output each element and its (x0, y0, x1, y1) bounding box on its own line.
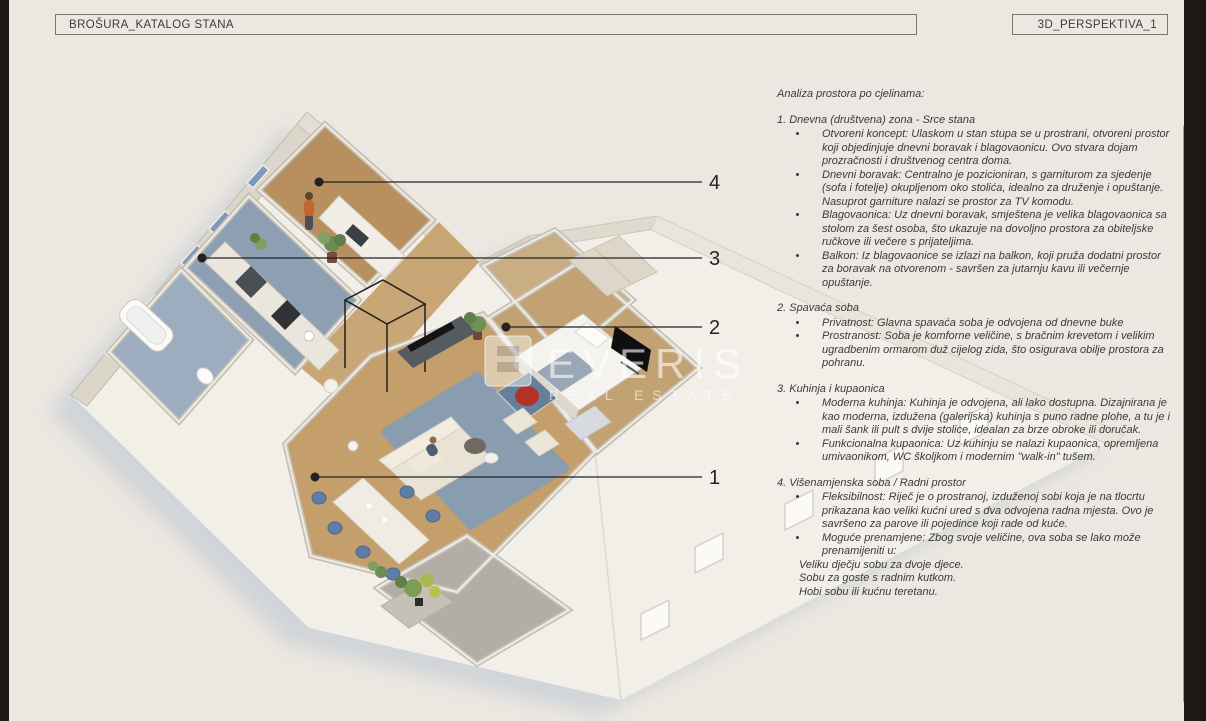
bullet-item: Blagovaonica: Uz dnevni boravak, smješte… (809, 209, 1171, 250)
analysis-title: Analiza prostora po cjelinama: (777, 88, 1171, 102)
page-edge-right (1184, 0, 1206, 721)
standing-person (304, 192, 314, 230)
callout-1-number: 1 (709, 467, 720, 489)
page-edge-left (0, 0, 9, 721)
bullet-item: Privatnost: Glavna spavaća soba je odvoj… (809, 317, 1171, 331)
bullet-item: Dnevni boravak: Centralno je pozicionira… (809, 169, 1171, 210)
analysis-section: 2. Spavaća soba Privatnost: Glavna spava… (777, 302, 1171, 371)
watermark-brand: EVERIS (547, 340, 749, 387)
section-bullet-list: Otvoreni koncept: Ulaskom u stan stupa s… (777, 128, 1171, 290)
brochure-page: BROŠURA_KATALOG STANA 3D_PERSPEKTIVA_1 (9, 0, 1184, 721)
callout-3-number: 3 (709, 248, 720, 270)
section-bullet-list: Fleksibilnost: Riječ je o prostranoj, iz… (777, 491, 1171, 559)
analysis-section: 1. Dnevna (društvena) zona - Srce stana … (777, 114, 1171, 291)
section-heading: 2. Spavaća soba (777, 302, 1171, 316)
analysis-section: 4. Višenamjenska soba / Radni prostor Fl… (777, 477, 1171, 600)
bullet-item: Fleksibilnost: Riječ je o prostranoj, iz… (809, 491, 1171, 532)
callout-4-number: 4 (709, 172, 720, 194)
analysis-section: 3. Kuhinja i kupaonica Moderna kuhinja: … (777, 383, 1171, 465)
bullet-item: Balkon: Iz blagovaonice se izlazi na bal… (809, 250, 1171, 291)
section-heading: 4. Višenamjenska soba / Radni prostor (777, 477, 1171, 491)
bullet-item: Prostranost: Soba je komforne veličine, … (809, 330, 1171, 371)
section-heading: 3. Kuhinja i kupaonica (777, 383, 1171, 397)
watermark-logo-icon (485, 336, 531, 386)
extra-line: Hobi sobu ili kućnu teretanu. (799, 586, 1171, 600)
analysis-sections: 1. Dnevna (društvena) zona - Srce stana … (777, 114, 1171, 600)
coffee-table (464, 438, 486, 454)
extra-line: Veliku dječju sobu za dvoje djece. (799, 559, 1171, 573)
bullet-item: Otvoreni koncept: Ulaskom u stan stupa s… (809, 128, 1171, 169)
floor-lamp (348, 441, 358, 451)
section-bullet-list: Moderna kuhinja: Kuhinja je odvojena, al… (777, 397, 1171, 465)
analysis-column: Analiza prostora po cjelinama: 1. Dnevna… (777, 88, 1171, 599)
kitchen-stool (324, 379, 338, 393)
extra-line: Sobu za goste s radnim kutkom. (799, 572, 1171, 586)
section-heading: 1. Dnevna (društvena) zona - Srce stana (777, 114, 1171, 128)
watermark-tagline: REAL ESTATE (549, 387, 740, 403)
section-bullet-list: Privatnost: Glavna spavaća soba je odvoj… (777, 317, 1171, 371)
bullet-item: Funkcionalna kupaonica: Uz kuhinju se na… (809, 438, 1171, 465)
side-table (484, 453, 498, 463)
bullet-item: Moguće prenamjene: Zbog svoje veličine, … (809, 532, 1171, 559)
callout-2-number: 2 (709, 317, 720, 339)
bullet-item: Moderna kuhinja: Kuhinja je odvojena, al… (809, 397, 1171, 438)
